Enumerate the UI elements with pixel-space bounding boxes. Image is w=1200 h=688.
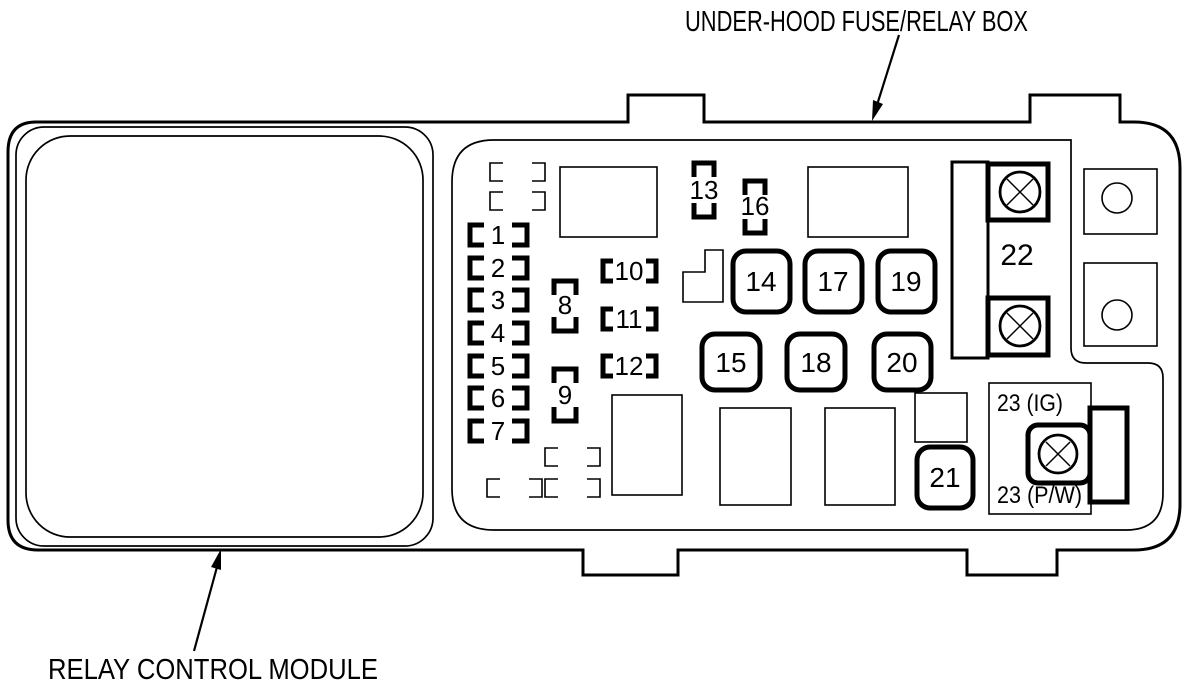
relay-17-label: 17 [817, 266, 848, 297]
relay-control-module-label: RELAY CONTROL MODULE [48, 654, 378, 686]
fuse-2-label: 2 [491, 253, 505, 283]
fuse-7-label: 7 [491, 416, 505, 446]
fuse-6-label: 6 [491, 383, 505, 413]
relay-19-label: 19 [890, 266, 921, 297]
fuse-10-label: 10 [615, 256, 644, 286]
fuse-9-label: 9 [558, 380, 572, 410]
fuse-5-label: 5 [491, 351, 505, 381]
fuse-11-label: 11 [616, 304, 643, 334]
fuse-1-label: 1 [491, 220, 505, 250]
terminal-23-pw-label: 23 (P/W) [997, 482, 1082, 509]
fuse-13-label: 13 [690, 175, 719, 205]
fuse-4-label: 4 [491, 318, 505, 348]
terminal-23-ig-label: 23 (IG) [997, 390, 1063, 417]
relay-20-label: 20 [886, 347, 917, 378]
fuse-16-label: 16 [741, 191, 770, 221]
relay-21-label: 21 [929, 462, 960, 493]
fuse-3-label: 3 [491, 285, 505, 315]
fuse-box-title-label: UNDER-HOOD FUSE/RELAY BOX [685, 6, 1028, 38]
relay-14-label: 14 [745, 266, 776, 297]
fuse-12-label: 12 [615, 351, 644, 381]
fuse-8-label: 8 [558, 290, 572, 320]
relay-15-label: 15 [715, 347, 746, 378]
fusible-link-22-label: 22 [1000, 239, 1033, 272]
relay-18-label: 18 [800, 347, 831, 378]
background [0, 0, 1200, 688]
fuse-box-schematic: UNDER-HOOD FUSE/RELAY BOX RELAY CONTROL … [0, 0, 1200, 688]
under-hood-fuse-relay-box-diagram: UNDER-HOOD FUSE/RELAY BOX RELAY CONTROL … [0, 0, 1200, 688]
